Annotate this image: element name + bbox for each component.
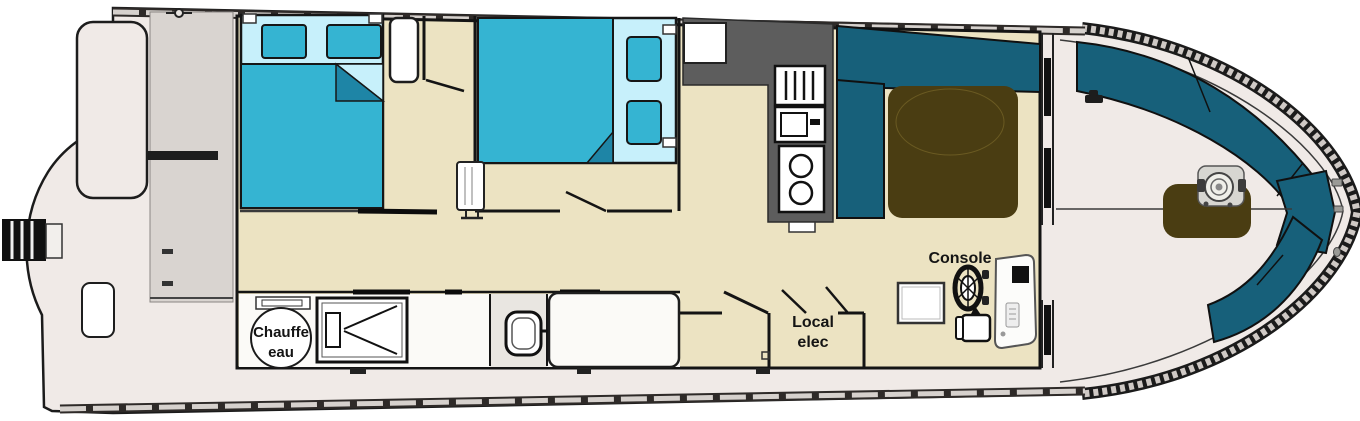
kitchen-sink bbox=[684, 23, 726, 63]
water-heater-label-line2: eau bbox=[268, 344, 294, 361]
local-elec-label-line2: elec bbox=[797, 334, 828, 351]
bed-pillow bbox=[627, 37, 661, 81]
shower bbox=[317, 298, 407, 362]
dinette-table bbox=[888, 86, 1018, 218]
grill-vent-icon bbox=[775, 66, 825, 105]
bedroom2-bed bbox=[478, 18, 676, 163]
water-heater-label-line1: Chauffe bbox=[253, 324, 309, 341]
pilot-seat bbox=[956, 315, 990, 341]
boat-floor-plan: Chauffe eau Local elec Console bbox=[0, 0, 1360, 421]
bed-pillow bbox=[327, 25, 381, 58]
bed2-mattress bbox=[478, 18, 613, 163]
dinette-bench-side bbox=[837, 80, 884, 218]
bathroom-cabinet bbox=[549, 293, 679, 367]
bed-pillow bbox=[262, 25, 306, 58]
wardrobe bbox=[390, 18, 418, 82]
oven-icon bbox=[775, 107, 825, 142]
stern-hatch bbox=[77, 22, 147, 198]
radiator bbox=[457, 162, 484, 218]
window-tab bbox=[243, 14, 256, 23]
stern-hook bbox=[162, 281, 173, 286]
stern-hatch-small bbox=[82, 283, 114, 337]
shower-head-icon bbox=[326, 313, 340, 347]
counter-end-tab bbox=[789, 222, 815, 232]
stove-burners-icon bbox=[779, 146, 824, 212]
stern-hook bbox=[162, 249, 173, 254]
window-tab bbox=[663, 138, 676, 147]
console-desk bbox=[995, 255, 1036, 348]
dinette bbox=[837, 26, 1040, 218]
window-tab bbox=[663, 25, 676, 34]
floor-plan-canvas: Chauffe eau Local elec Console bbox=[0, 0, 1360, 421]
console-label: Console bbox=[928, 250, 991, 267]
local-elec-label-line1: Local bbox=[792, 314, 834, 331]
window-tab bbox=[369, 14, 382, 23]
swim-ladder-icon bbox=[2, 219, 62, 261]
bedroom1-bed bbox=[241, 15, 383, 208]
bed-pillow bbox=[627, 101, 661, 144]
windlass-icon bbox=[1197, 166, 1246, 208]
helm-cabinet bbox=[898, 283, 944, 323]
